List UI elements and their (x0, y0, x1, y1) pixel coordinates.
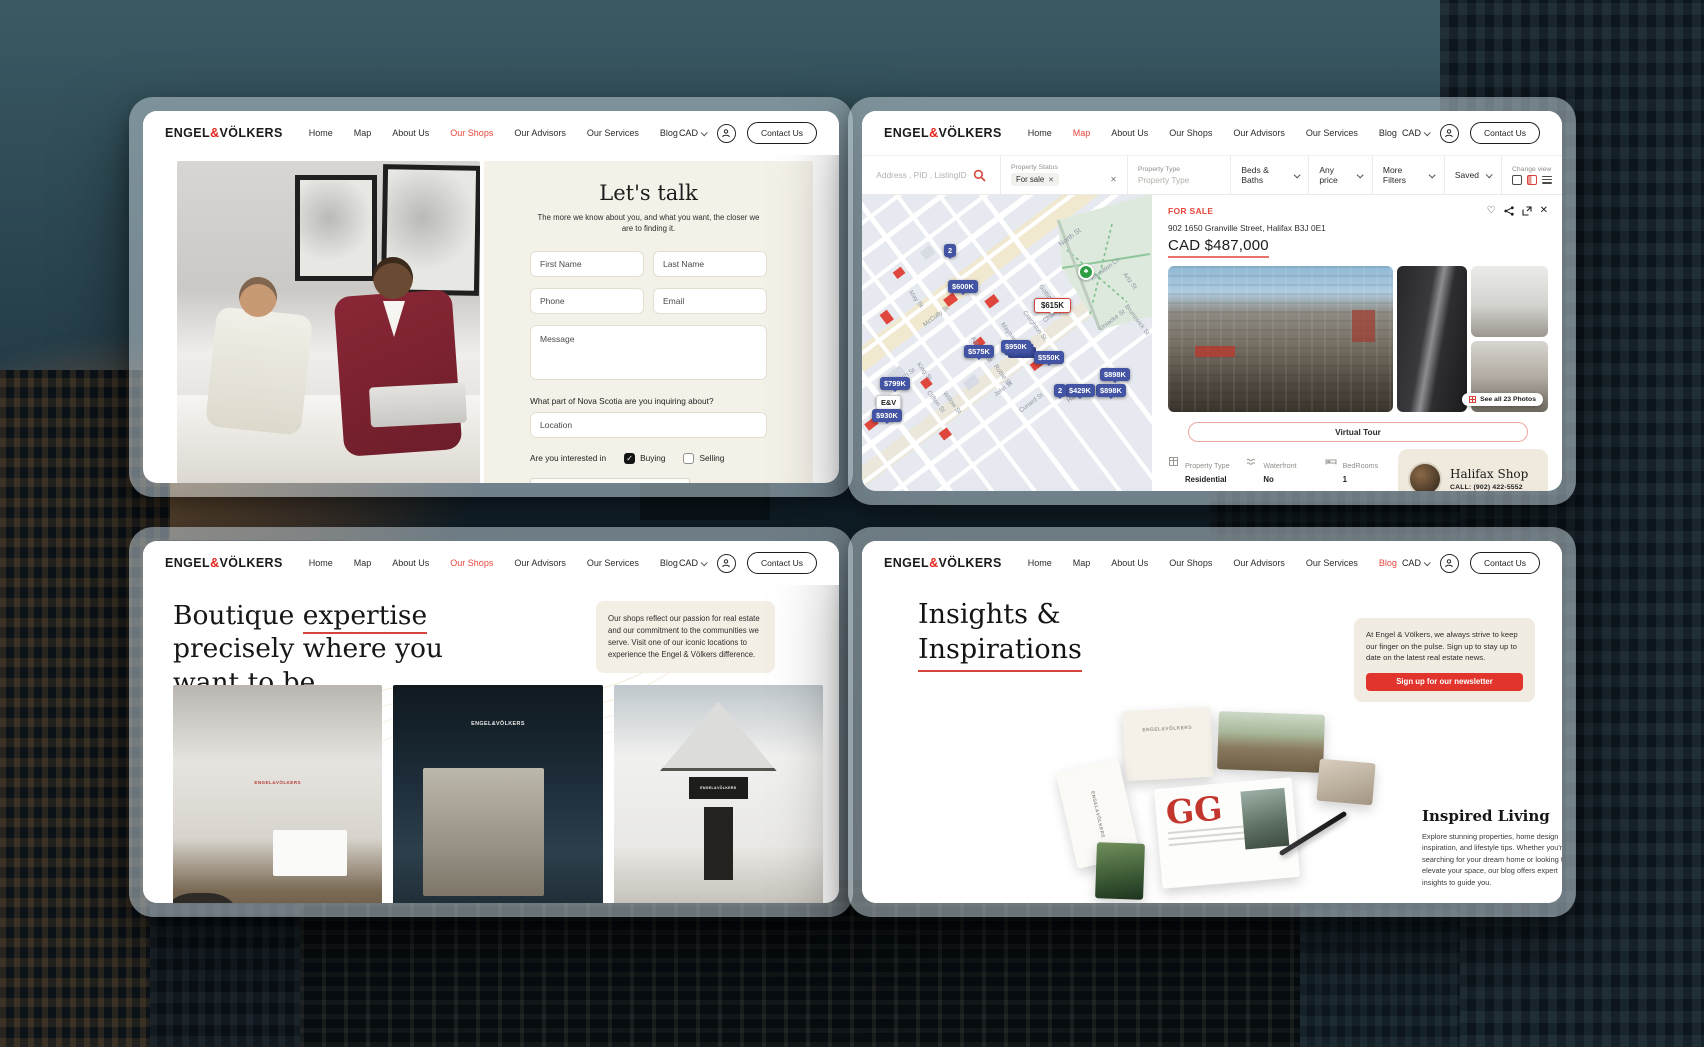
window-map-search: ENGEL&VÖLKERS Home Map About Us Our Shop… (848, 97, 1576, 505)
storefront-window (423, 768, 544, 896)
nav-item-our-services[interactable]: Our Services (587, 128, 639, 138)
property-type-filter[interactable]: Property Type Property Type (1128, 156, 1232, 194)
logo-engel: ENGEL (884, 126, 929, 140)
landscape-photo (1095, 842, 1145, 900)
logo-ampersand: & (210, 126, 219, 140)
map-pin-price[interactable]: $600K (948, 280, 978, 293)
email-field[interactable] (653, 288, 767, 314)
underlined-word: expertise (303, 600, 427, 634)
phone-field[interactable] (530, 288, 644, 314)
virtual-tour-button[interactable]: Virtual Tour (1188, 422, 1528, 442)
nav-item-our-advisors[interactable]: Our Advisors (514, 558, 566, 568)
map-pin-price[interactable]: $575K (964, 345, 994, 358)
logo-engel: ENGEL (165, 556, 210, 570)
waves-icon (1246, 456, 1257, 467)
newsletter-signup-button[interactable]: Sign up for our newsletter (1366, 673, 1523, 691)
article-title: Inspired Living (1422, 807, 1550, 825)
top-nav: ENGEL&VÖLKERS Home Map About Us Our Shop… (862, 111, 1562, 155)
change-view-label: Change view (1512, 166, 1552, 173)
logo-volkers: VÖLKERS (220, 556, 283, 570)
blog-photo-collage: ENGEL&VÖLKERS ENGEL&VÖLKERS GG (1066, 703, 1406, 903)
property-type-label: Property Type (1138, 166, 1221, 173)
map-pin-price[interactable]: $930K (872, 409, 902, 422)
saved-searches-button[interactable]: Saved (1445, 156, 1502, 194)
listing-photos: See all 23 Photos (1168, 266, 1548, 412)
window-contact-form: ENGEL&VÖLKERS Home Map About Us Our Shop… (129, 97, 853, 497)
top-nav: ENGEL&VÖLKERS Home Map About Us Our Shop… (862, 541, 1562, 585)
nav-item-home[interactable]: Home (1028, 128, 1052, 138)
map-pin-price[interactable]: $550K (1034, 351, 1064, 364)
nav-item-about-us[interactable]: About Us (392, 128, 429, 138)
profile-icon[interactable] (1440, 554, 1459, 573)
blog-page-body: Insights & Inspirations At Engel & Völke… (862, 585, 1562, 903)
magazine-photo (1240, 788, 1289, 850)
person-left (205, 306, 313, 435)
selling-option[interactable]: Selling (683, 453, 724, 464)
listing-detail-panel: FOR SALE ♡ ✕ 902 1650 Granville Street, … (1152, 194, 1562, 491)
chevron-down-icon (1357, 171, 1364, 178)
shop-sign-text: ENGEL&VÖLKERS (173, 780, 382, 785)
detail-property-type: Property TypeResidential (1168, 455, 1246, 484)
nav-item-home[interactable]: Home (309, 558, 333, 568)
message-field[interactable] (530, 325, 767, 380)
nav-right: CAD Contact Us (1402, 552, 1540, 574)
nav-items: Home Map About Us Our Shops Our Advisors… (1028, 558, 1397, 568)
photo-detail (1352, 310, 1374, 342)
top-nav: ENGEL&VÖLKERS Home Map About Us Our Shop… (143, 111, 839, 155)
first-name-field[interactable] (530, 251, 644, 277)
brand-logo[interactable]: ENGEL&VÖLKERS (884, 126, 1002, 140)
property-type-placeholder: Property Type (1138, 175, 1221, 185)
nav-right: CAD Contact Us (679, 552, 817, 574)
photo-grid-icon (1469, 396, 1476, 403)
shops-intro-card: Our shops reflect our passion for real e… (596, 601, 775, 673)
advisors-meeting-photo (177, 161, 480, 483)
profile-icon[interactable] (1440, 124, 1459, 143)
shop-photo-house[interactable]: ENGEL&VÖLKERS (614, 685, 823, 903)
bed-icon (1325, 456, 1337, 467)
top-nav: ENGEL&VÖLKERS Home Map About Us Our Shop… (143, 541, 839, 585)
interior-photo (1316, 759, 1375, 806)
nav-item-blog[interactable]: Blog (1379, 558, 1397, 568)
letterhead-paper: ENGEL&VÖLKERS (1122, 707, 1214, 782)
chevron-down-icon (701, 559, 708, 566)
nav-item-our-shops[interactable]: Our Shops (1169, 558, 1212, 568)
location-select[interactable] (530, 412, 767, 438)
contact-page-body: Let's talk The more we know about you, a… (143, 155, 839, 483)
buying-checkbox[interactable]: ✓ (624, 453, 635, 464)
nav-item-home[interactable]: Home (1028, 558, 1052, 568)
see-all-photos-button[interactable]: See all 23 Photos (1462, 393, 1543, 406)
list-view-icon[interactable] (1542, 175, 1552, 185)
nav-right: CAD Contact Us (1402, 122, 1540, 144)
shop-avatar (1408, 462, 1442, 491)
interest-row: Are you interested in ✓ Buying Selling (530, 453, 767, 464)
form-title: Let's talk (530, 181, 767, 205)
listing-photo-kitchen[interactable] (1471, 266, 1549, 337)
shop-photo-storefront[interactable]: ENGEL&VÖLKERS (393, 685, 602, 903)
logo-engel: ENGEL (884, 556, 929, 570)
more-filters-button[interactable]: More Filters (1373, 156, 1445, 194)
profile-icon[interactable] (717, 554, 736, 573)
detail-waterfront: WaterfrontNo (1246, 455, 1324, 484)
nav-item-our-advisors[interactable]: Our Advisors (1233, 128, 1285, 138)
shop-phone[interactable]: CALL: (902) 422-5552 (1450, 484, 1528, 491)
nav-item-home[interactable]: Home (309, 128, 333, 138)
shop-photo-interior[interactable]: ENGEL&VÖLKERS (173, 685, 382, 903)
logo-engel: ENGEL (165, 126, 210, 140)
interest-label: Are you interested in (530, 453, 606, 463)
shops-page-body: Boutique expertise precisely where you w… (143, 585, 839, 903)
logo-volkers: VÖLKERS (939, 126, 1002, 140)
chevron-down-icon (701, 129, 708, 136)
person-right-head (373, 257, 413, 299)
building-icon (1168, 456, 1179, 467)
gg-magazine: GG (1154, 777, 1300, 889)
nav-item-map[interactable]: Map (354, 558, 372, 568)
share-icon[interactable] (1504, 206, 1514, 216)
clear-filter-icon[interactable]: ✕ (1102, 175, 1117, 184)
location-question-label: What part of Nova Scotia are you inquiri… (530, 396, 767, 406)
expand-icon[interactable] (1522, 206, 1532, 216)
recaptcha-widget: Я не робот (530, 478, 690, 483)
chevron-down-icon (1429, 171, 1436, 178)
nav-item-our-services[interactable]: Our Services (587, 558, 639, 568)
map-pin-price[interactable]: $950K (1001, 340, 1031, 353)
buying-option[interactable]: ✓ Buying (624, 453, 665, 464)
photo-detail (1195, 346, 1235, 356)
contact-form-panel: Let's talk The more we know about you, a… (484, 161, 813, 483)
profile-icon[interactable] (717, 124, 736, 143)
selling-checkbox[interactable] (683, 453, 694, 464)
listing-details-grid: Property TypeResidential WaterfrontNo Be… (1168, 455, 1403, 491)
map-pin-price[interactable]: $799K (880, 377, 910, 390)
close-icon[interactable]: ✕ (1540, 206, 1548, 216)
listing-address: 902 1650 Granville Street, Halifax B3J 0… (1168, 223, 1548, 233)
newsletter-text: At Engel & Völkers, we always strive to … (1366, 629, 1523, 664)
map-pin-price[interactable]: $429K (1065, 384, 1095, 397)
nav-item-blog[interactable]: Blog (1379, 128, 1397, 138)
window-blog: ENGEL&VÖLKERS Home Map About Us Our Shop… (848, 527, 1576, 917)
currency-selector[interactable]: CAD (679, 128, 706, 138)
nav-item-map[interactable]: Map (1073, 128, 1091, 138)
nav-item-blog[interactable]: Blog (660, 558, 678, 568)
chevron-down-icon (1424, 129, 1431, 136)
map-pin-price[interactable]: $898K (1100, 368, 1130, 381)
listing-photo-main[interactable] (1168, 266, 1393, 412)
shop-sign-text: ENGEL&VÖLKERS (393, 721, 602, 727)
house-sign: ENGEL&VÖLKERS (689, 777, 748, 799)
nav-item-about-us[interactable]: About Us (1111, 128, 1148, 138)
logo-volkers: VÖLKERS (939, 556, 1002, 570)
window-our-shops: ENGEL&VÖLKERS Home Map About Us Our Shop… (129, 527, 853, 917)
brand-logo[interactable]: ENGEL&VÖLKERS (884, 556, 1002, 570)
nav-item-about-us[interactable]: About Us (1111, 558, 1148, 568)
map-results-body: North St Hamilton Ln Artz St Gottingen S… (862, 194, 1562, 491)
house-photo (1217, 711, 1325, 773)
shop-contact-card[interactable]: Halifax Shop CALL: (902) 422-5552 (1398, 449, 1548, 491)
nav-item-map[interactable]: Map (1073, 558, 1091, 568)
currency-selector[interactable]: CAD (1402, 128, 1429, 138)
logo-ampersand: & (929, 126, 938, 140)
selling-label: Selling (699, 453, 724, 463)
listing-photo-hallway[interactable] (1397, 266, 1467, 412)
nav-item-about-us[interactable]: About Us (392, 558, 429, 568)
map-pin-ev-shop[interactable]: E&V (876, 395, 901, 410)
logo-ampersand: & (929, 556, 938, 570)
beds-baths-filter[interactable]: Beds & Baths (1231, 156, 1309, 194)
house-door (704, 807, 733, 879)
park-marker-icon[interactable]: ♣ (1078, 264, 1094, 280)
form-subtitle: The more we know about you, and what you… (534, 212, 764, 235)
nav-item-our-advisors[interactable]: Our Advisors (1233, 558, 1285, 568)
contact-us-button[interactable]: Contact Us (1470, 122, 1540, 144)
nav-item-our-services[interactable]: Our Services (1306, 128, 1358, 138)
currency-selector[interactable]: CAD (679, 558, 706, 568)
house-gable (660, 702, 777, 772)
map-pin-cluster[interactable]: 2 (1054, 384, 1066, 397)
favorite-heart-icon[interactable]: ♡ (1487, 206, 1496, 216)
currency-selector[interactable]: CAD (1402, 558, 1429, 568)
laptop (369, 383, 467, 428)
brand-logo[interactable]: ENGEL&VÖLKERS (165, 556, 283, 570)
contact-us-button[interactable]: Contact Us (1470, 552, 1540, 574)
brand-logo[interactable]: ENGEL&VÖLKERS (165, 126, 283, 140)
contact-us-button[interactable]: Contact Us (747, 122, 817, 144)
desktop-background: ENGEL&VÖLKERS Home Map About Us Our Shop… (0, 0, 1704, 1047)
change-view-control: Change view (1502, 156, 1562, 194)
blog-heading: Insights & Inspirations (918, 597, 1082, 672)
nav-right: CAD Contact Us (679, 122, 817, 144)
wall-art (295, 175, 377, 281)
nav-item-our-shops[interactable]: Our Shops (1169, 128, 1212, 138)
last-name-field[interactable] (653, 251, 767, 277)
person-left-head (239, 277, 277, 317)
nav-item-our-advisors[interactable]: Our Advisors (514, 128, 566, 138)
nav-items: Home Map About Us Our Shops Our Advisors… (309, 128, 678, 138)
nav-items: Home Map About Us Our Shops Our Advisors… (309, 558, 678, 568)
shop-photo-row: ENGEL&VÖLKERS ENGEL&VÖLKERS ENGEL&VÖLKER… (173, 685, 823, 903)
chair (173, 893, 237, 903)
reception-desk (273, 830, 347, 876)
chevron-down-icon (1486, 171, 1493, 178)
map-pin-cluster[interactable]: 2 (944, 244, 956, 257)
search-placeholder: Address , PID , ListingID (876, 170, 966, 180)
nav-item-our-shops[interactable]: Our Shops (450, 128, 493, 138)
logo-volkers: VÖLKERS (220, 126, 283, 140)
newsletter-card: At Engel & Völkers, we always strive to … (1354, 618, 1535, 702)
chevron-down-icon (1293, 171, 1300, 178)
property-status-label: Property Status (1011, 164, 1117, 171)
map-pin-selected[interactable]: $615K (1034, 298, 1071, 313)
search-filter-bar: Address , PID , ListingID Property Statu… (862, 155, 1562, 195)
map-pin-price[interactable]: $898K (1096, 384, 1126, 397)
for-sale-chip[interactable]: For sale✕ (1011, 173, 1059, 186)
shop-name: Halifax Shop (1450, 467, 1528, 481)
chevron-down-icon (1424, 559, 1431, 566)
buying-label: Buying (640, 453, 665, 463)
nav-items: Home Map About Us Our Shops Our Advisors… (1028, 128, 1397, 138)
listing-search[interactable]: Address , PID , ListingID (862, 156, 1001, 194)
property-status-filter[interactable]: Property Status For sale✕ ✕ (1001, 156, 1128, 194)
split-view-icon[interactable] (1527, 175, 1537, 185)
nav-item-our-shops[interactable]: Our Shops (450, 558, 493, 568)
nav-item-our-services[interactable]: Our Services (1306, 558, 1358, 568)
chip-remove-icon[interactable]: ✕ (1048, 176, 1054, 184)
logo-ampersand: & (210, 556, 219, 570)
nav-item-blog[interactable]: Blog (660, 128, 678, 138)
nav-item-map[interactable]: Map (354, 128, 372, 138)
listing-price: CAD $487,000 (1168, 237, 1269, 258)
map-canvas[interactable]: North St Hamilton Ln Artz St Gottingen S… (862, 194, 1152, 491)
contact-us-button[interactable]: Contact Us (747, 552, 817, 574)
price-filter[interactable]: Any price (1309, 156, 1373, 194)
detail-bedrooms: BedRooms1 (1325, 455, 1403, 484)
grid-view-icon[interactable] (1512, 175, 1522, 185)
search-icon[interactable] (973, 169, 986, 182)
article-text: Explore stunning properties, home design… (1422, 831, 1562, 888)
listing-status-badge: FOR SALE (1168, 206, 1213, 216)
